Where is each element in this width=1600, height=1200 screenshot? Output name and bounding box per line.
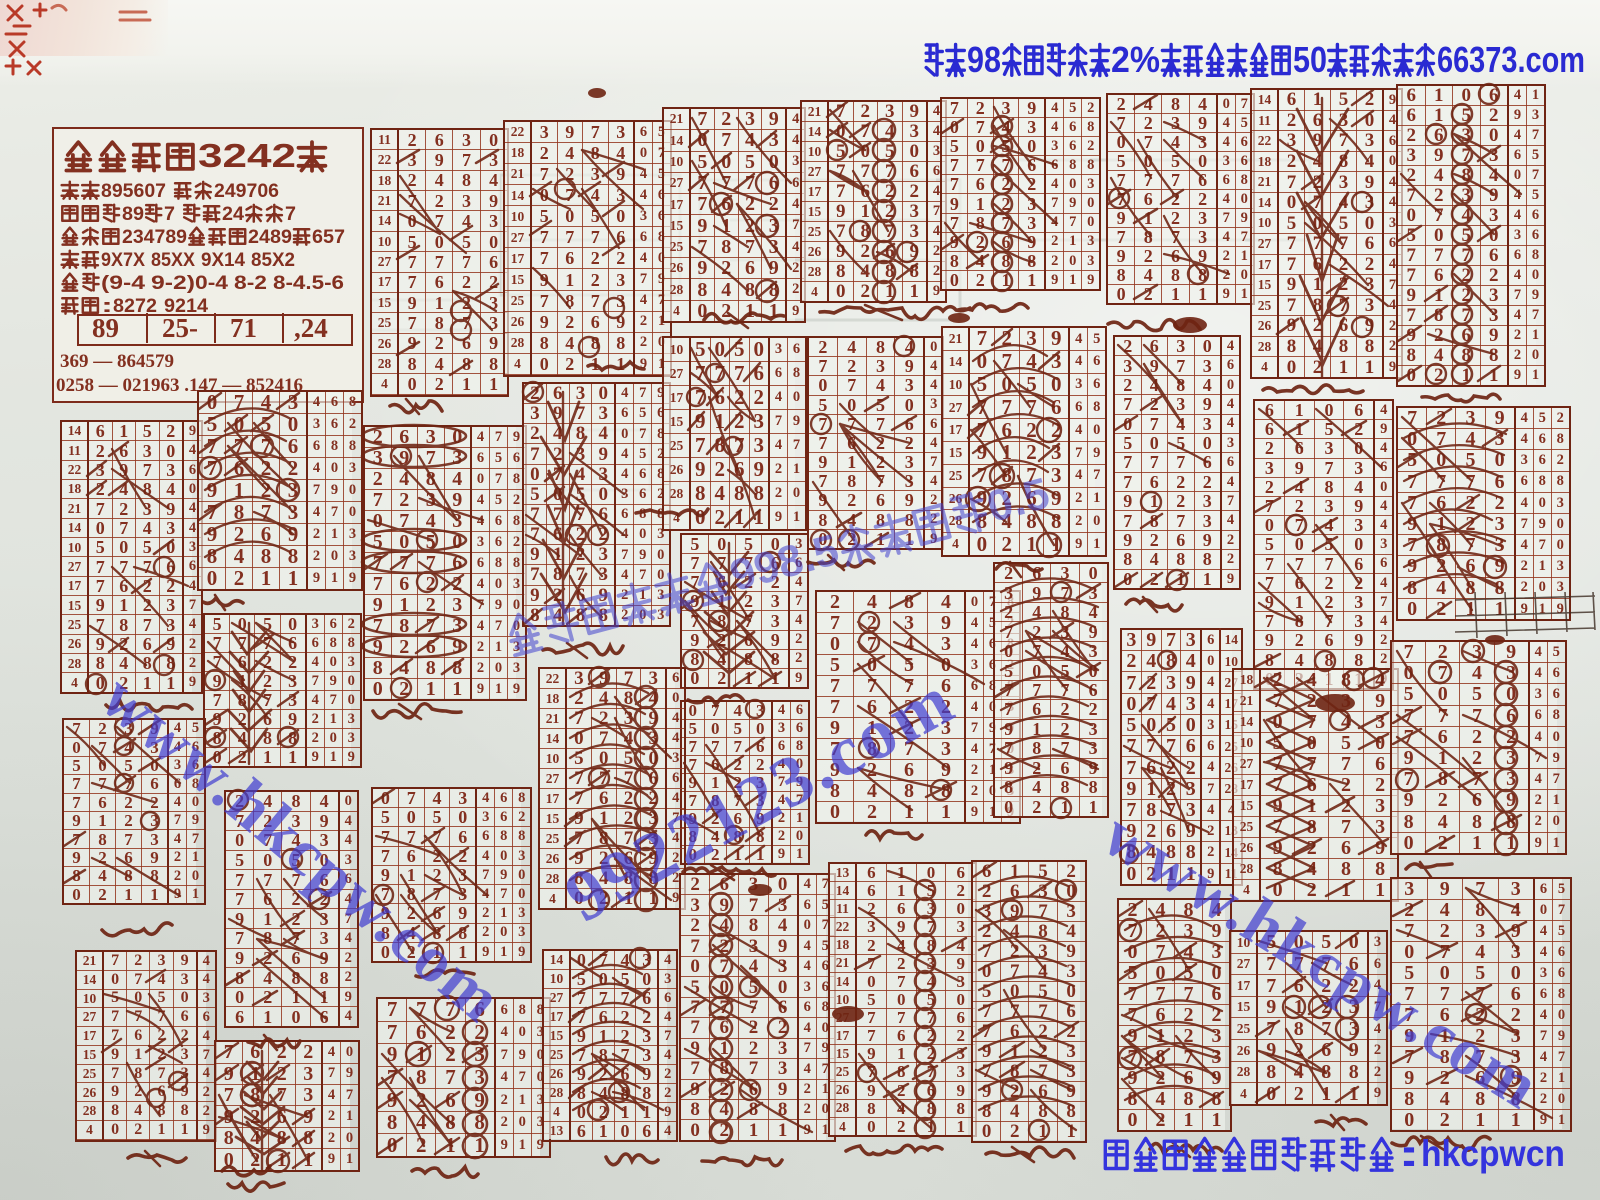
svg-text::: : [1397, 1133, 1421, 1174]
svg-text:2%: 2% [1111, 39, 1160, 80]
svg-text:9922123.com: 9922123.com [552, 659, 968, 938]
svg-text:www.hkcpw.com: www.hkcpw.com [1091, 798, 1553, 1124]
svg-text:www.hkcpw.com: www.hkcpw.com [88, 660, 517, 1037]
svg-text:66373.com: 66373.com [1437, 39, 1585, 80]
svg-text:0.5: 0.5 [982, 469, 1055, 532]
svg-text:998.5: 998.5 [725, 525, 844, 601]
svg-text:50: 50 [1293, 39, 1327, 80]
svg-text:98: 98 [967, 39, 1001, 80]
svg-text:hkcpwcn: hkcpwcn [1421, 1133, 1565, 1174]
